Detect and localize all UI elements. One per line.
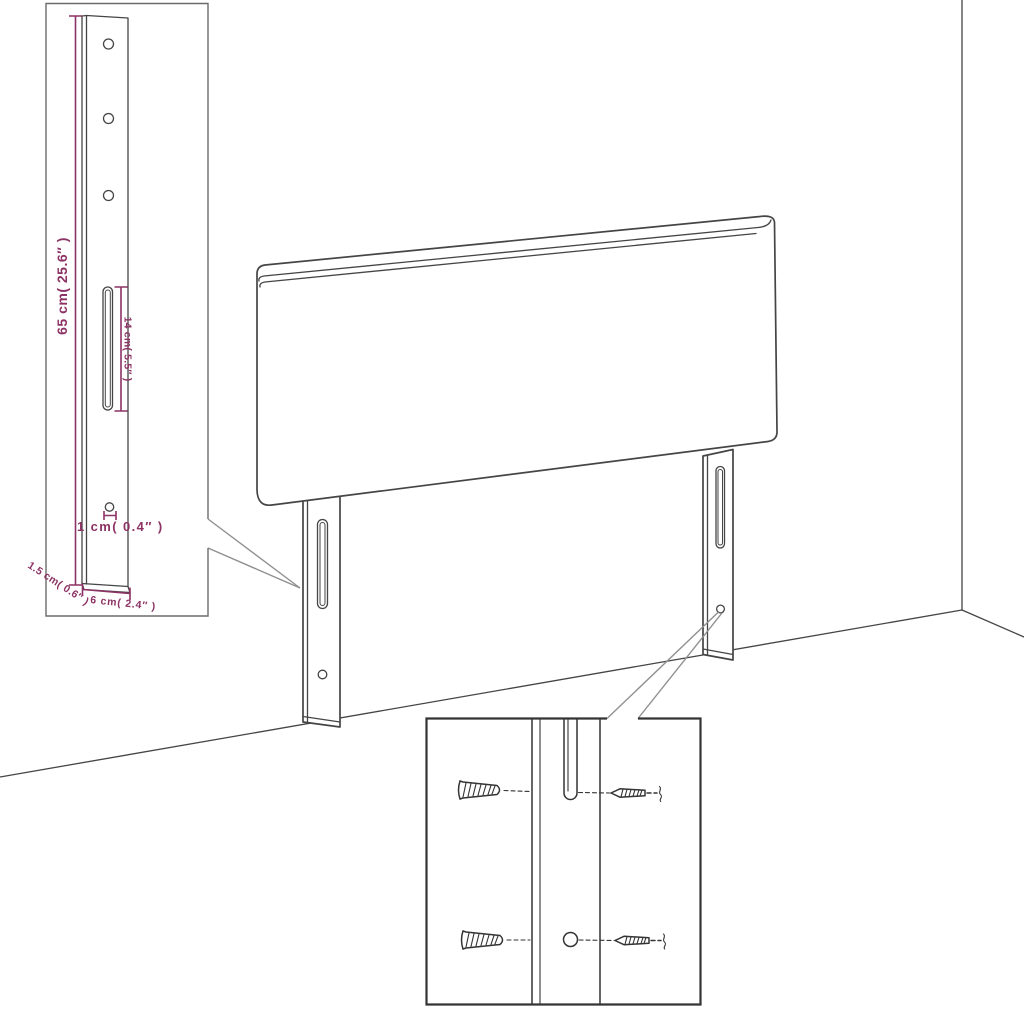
plug-alignment-dash-top <box>504 791 530 792</box>
headboard-assembly-diagram: 65 cm( 25.6″ ) 14 cm( 5.5″ ) 1 cm( 0.4″ … <box>0 0 1024 1024</box>
screw-alignment-dash-bottom <box>579 940 614 941</box>
slot-dimension-label: 14 cm( 5.5″ ) <box>122 317 134 382</box>
assembly-diagram-page: 65 cm( 25.6″ ) 14 cm( 5.5″ ) 1 cm( 0.4″ … <box>0 0 1024 1024</box>
bracket-slot <box>103 287 113 410</box>
bracket-top-hole-1 <box>104 39 114 49</box>
height-dimension-label: 65 cm( 25.6″ ) <box>54 237 70 335</box>
screw-alignment-dash-top <box>579 793 611 794</box>
right-callout-leader-left <box>607 612 719 719</box>
fastener-detail-callout <box>427 719 701 1005</box>
headboard <box>257 216 777 505</box>
wall-plug-icon-bottom <box>462 931 503 949</box>
right-mounting-leg <box>703 450 733 661</box>
detail-slot <box>564 719 577 800</box>
floor-line-right <box>962 610 1024 637</box>
bracket-bottom-hole <box>105 503 113 511</box>
screw-icon-top <box>611 787 661 802</box>
callout-leaders <box>208 519 722 719</box>
bracket-top-hole-3 <box>104 191 114 201</box>
height-dimension-line <box>69 16 82 585</box>
right-callout-leader-right <box>638 613 722 719</box>
headboard-panel <box>257 216 777 505</box>
bracket-slot-inner <box>105 290 110 407</box>
left-leg-body <box>303 496 340 727</box>
screw-icon-bottom <box>615 934 665 949</box>
hole-dimension-label: 1 cm( 0.4″ ) <box>77 519 164 534</box>
left-mounting-leg <box>303 496 340 727</box>
floor-line-left <box>0 610 962 777</box>
wall-plug-icon-top <box>459 781 500 799</box>
width-dimension-label: 6 cm( 2.4″ ) <box>90 594 157 613</box>
detail-hole <box>564 933 578 947</box>
bracket-detail-callout: 65 cm( 25.6″ ) 14 cm( 5.5″ ) 1 cm( 0.4″ … <box>25 4 208 617</box>
bracket-top-hole-2 <box>104 114 114 124</box>
